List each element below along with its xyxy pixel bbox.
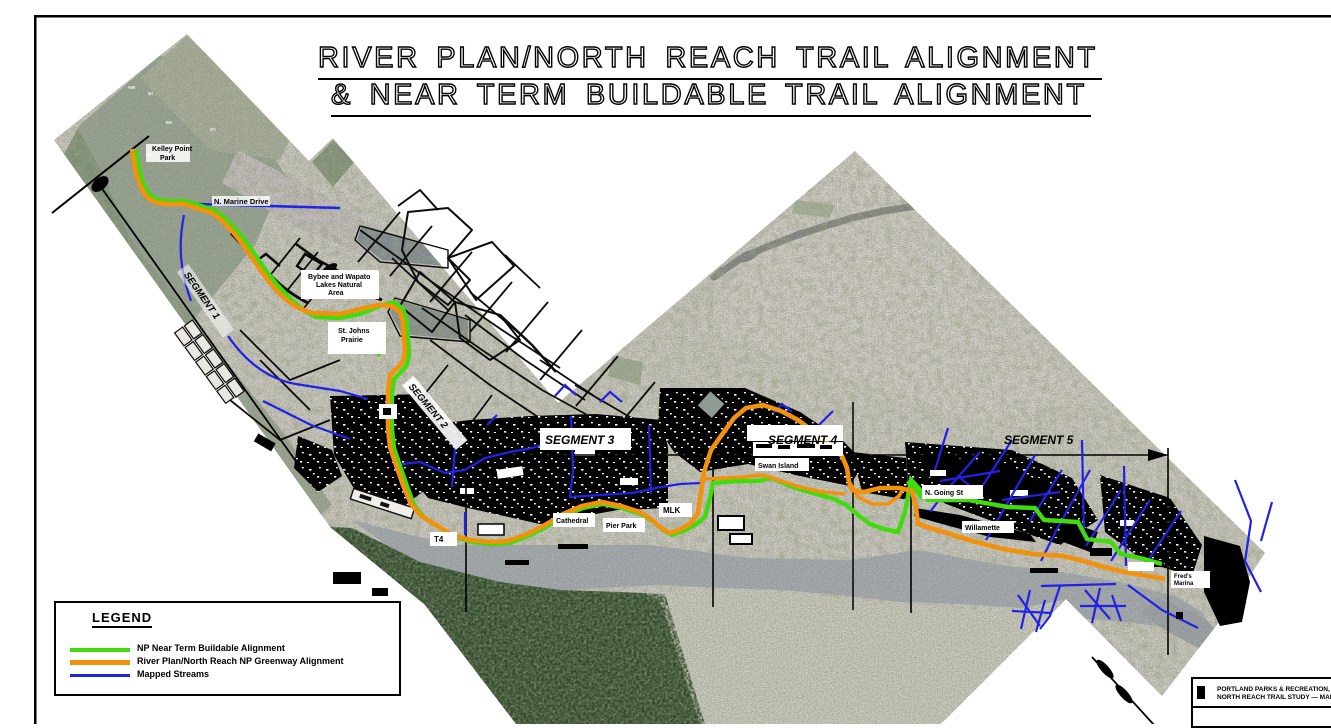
svg-text:Swan Island: Swan Island (758, 463, 798, 470)
svg-text:Fred's: Fred's (1174, 574, 1192, 580)
svg-text:Marina: Marina (1174, 581, 1194, 587)
svg-text:SEGMENT 3: SEGMENT 3 (545, 433, 615, 447)
svg-text:Lakes Natural: Lakes Natural (316, 282, 362, 289)
svg-text:Willamette: Willamette (965, 525, 1000, 532)
svg-text:SEGMENT 4: SEGMENT 4 (768, 433, 838, 447)
svg-text:Pier Park: Pier Park (606, 523, 636, 530)
svg-text:Cathedral: Cathedral (556, 518, 588, 525)
svg-text:Kelley Point: Kelley Point (152, 146, 193, 153)
svg-text:SEGMENT 5: SEGMENT 5 (1004, 433, 1074, 447)
svg-text:N. Marine Drive: N. Marine Drive (214, 197, 269, 206)
svg-text:MLK: MLK (663, 506, 681, 515)
svg-text:T4: T4 (434, 535, 444, 544)
svg-text:Bybee and Wapato: Bybee and Wapato (308, 274, 370, 281)
svg-text:Park: Park (160, 155, 175, 162)
svg-text:St. Johns: St. Johns (338, 328, 370, 335)
svg-text:N. Going St: N. Going St (925, 490, 964, 497)
svg-text:Area: Area (328, 290, 344, 297)
svg-text:Prairie: Prairie (341, 337, 363, 344)
